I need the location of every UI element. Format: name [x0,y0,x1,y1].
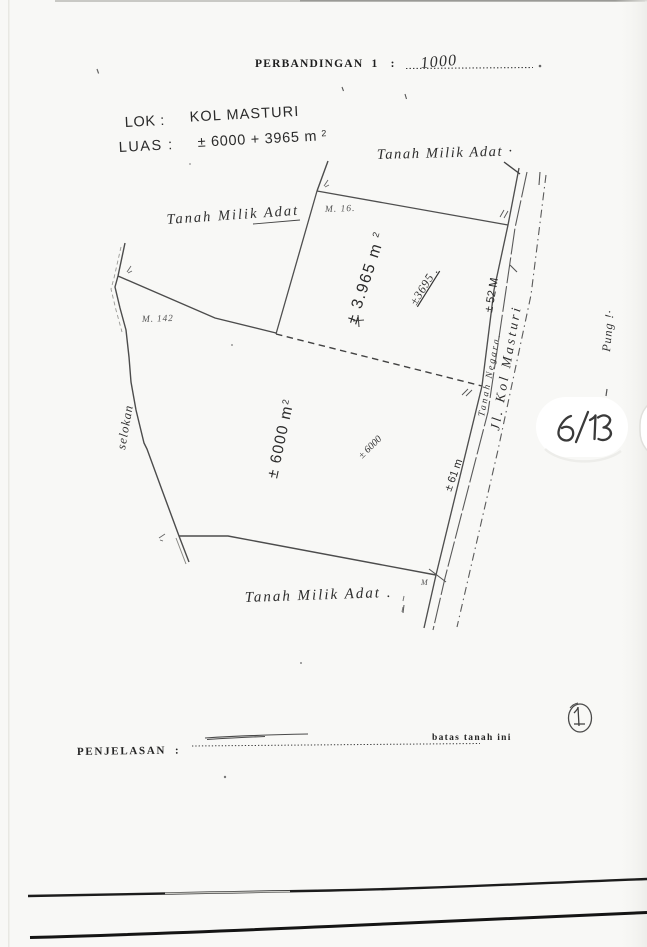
svg-text:PENJELASAN :: PENJELASAN : [77,745,181,758]
svg-text:2: 2 [321,128,327,138]
svg-text:PERBANDINGAN 1 :: PERBANDINGAN 1 : [255,58,396,70]
svg-text:M: M [420,578,429,587]
svg-text:M. 16.: M. 16. [324,204,356,215]
svg-text:LUAS :: LUAS : [118,137,174,156]
svg-text:batas tanah ini: batas tanah ini [432,733,512,743]
svg-text:M. 142: M. 142 [141,314,174,325]
svg-text:LOK :: LOK : [124,113,165,131]
svg-text:1000: 1000 [420,52,458,72]
